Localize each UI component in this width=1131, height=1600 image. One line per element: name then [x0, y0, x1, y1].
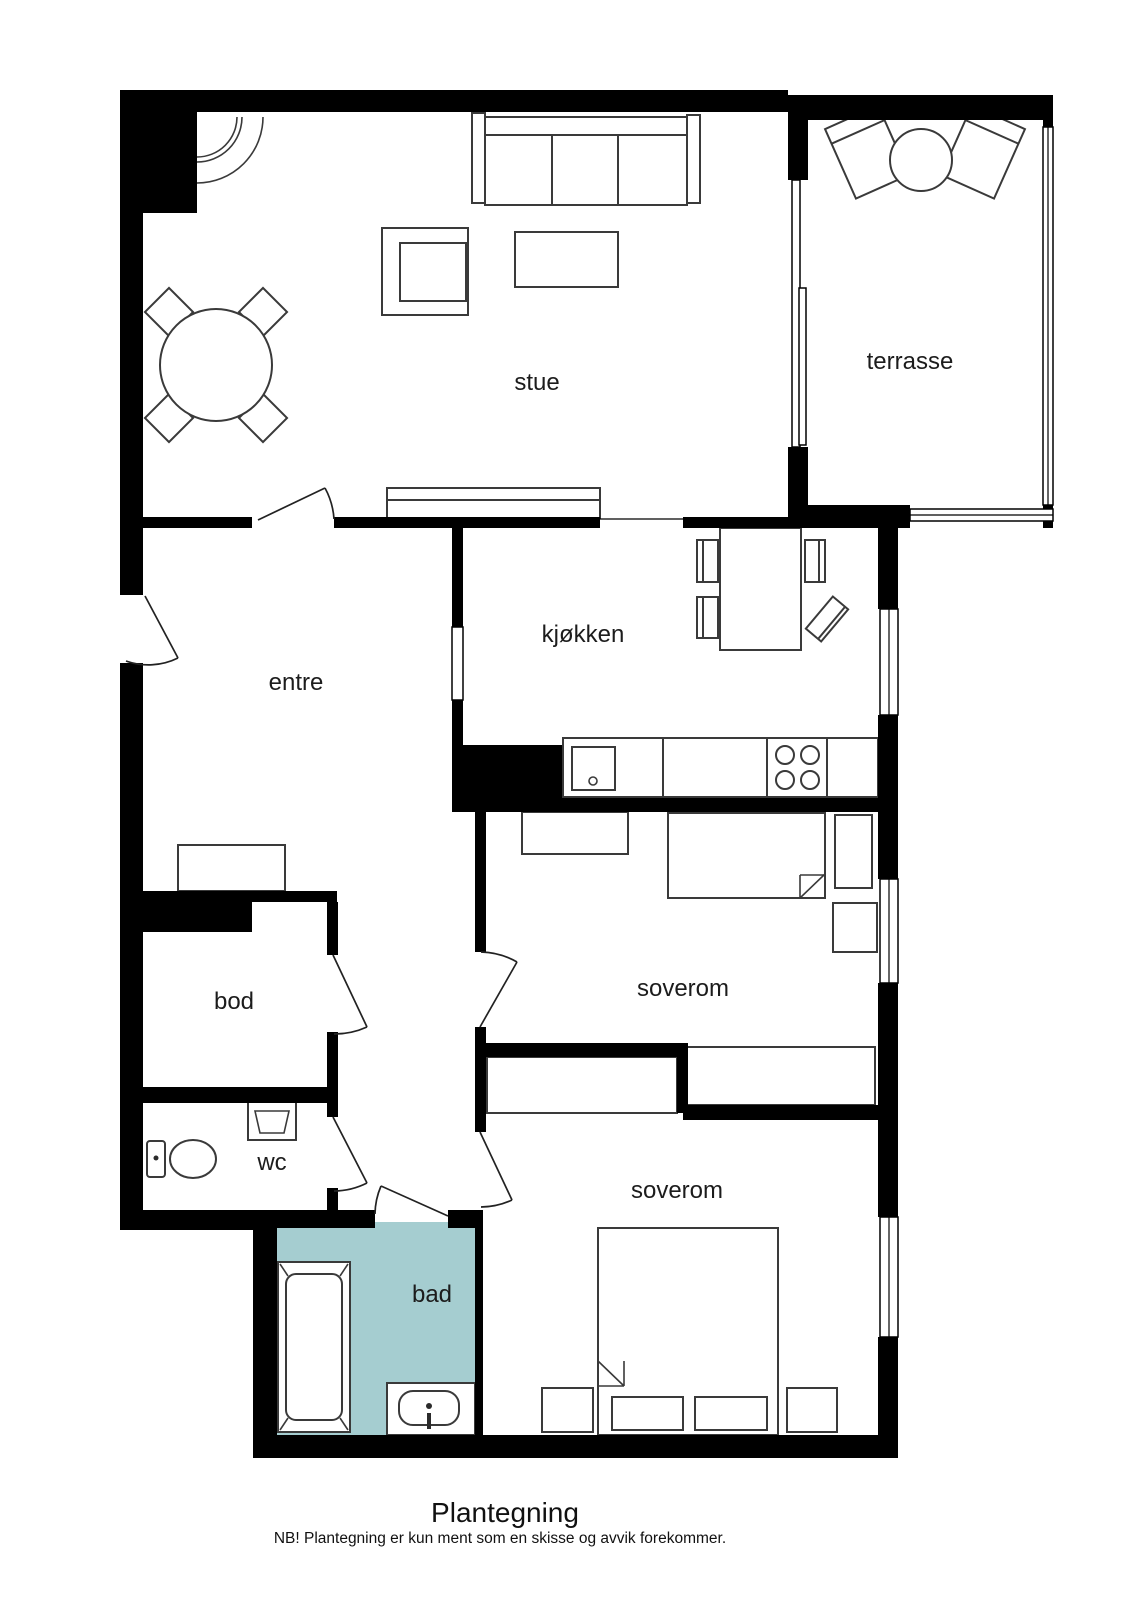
pillow: [612, 1397, 683, 1430]
corner-arc-feature: [197, 117, 263, 183]
wardrobe: [487, 1057, 677, 1113]
furniture-kitchen-counter: [563, 738, 878, 797]
page-title: Plantegning: [431, 1497, 579, 1528]
room-label-entre: entre: [269, 669, 324, 696]
furniture-tv-bench: [387, 488, 600, 518]
toilet-icon: [147, 1140, 216, 1178]
room-label-soverom-1: soverom: [637, 975, 729, 1002]
room-label-wc: wc: [256, 1149, 286, 1176]
wardrobe: [687, 1047, 875, 1105]
furniture-armchair: [382, 228, 468, 315]
bathroom-sink-icon: [387, 1383, 475, 1435]
floorplan-page: stue terrasse kjøkken entre bod wc bad s…: [0, 0, 1131, 1600]
nightstand: [835, 815, 872, 888]
furniture-sofa: [472, 113, 700, 205]
furniture-coffee-table: [515, 232, 618, 287]
room-label-stue: stue: [514, 369, 559, 396]
room-label-bad: bad: [412, 1281, 452, 1308]
kitchen-sink-icon: [572, 747, 615, 790]
bedroom2-door: [480, 1132, 512, 1207]
furniture-hall-cabinet: [178, 845, 285, 891]
terrace-sliding-panel: [799, 288, 806, 445]
room-label-bod: bod: [214, 988, 254, 1015]
pillow: [695, 1397, 767, 1430]
floorplan-drawing: stue terrasse kjøkken entre bod wc bad s…: [0, 0, 1131, 1600]
entrance-door: [126, 596, 178, 665]
nightstand: [787, 1388, 837, 1432]
wc-door: [333, 1117, 367, 1191]
storage-door: [333, 955, 367, 1034]
windows-and-railings: [452, 127, 1053, 1337]
room-label-soverom-2: soverom: [631, 1177, 723, 1204]
side-table: [833, 903, 877, 952]
furniture-kitchen-table-set: [697, 528, 848, 650]
bedroom1-door: [480, 952, 517, 1027]
hall-kitchen-opening: [452, 627, 463, 700]
furniture-dining-table-set: [145, 288, 287, 442]
page-disclaimer: NB! Plantegning er kun ment som en skiss…: [274, 1530, 726, 1547]
single-bed: [668, 813, 825, 898]
bathtub-icon: [278, 1262, 350, 1432]
desk: [522, 812, 628, 854]
nightstand: [542, 1388, 593, 1432]
living-room-door: [258, 488, 334, 520]
bathroom-door: [375, 1186, 448, 1216]
room-label-kjokken: kjøkken: [542, 621, 625, 648]
room-label-terrasse: terrasse: [867, 348, 954, 375]
